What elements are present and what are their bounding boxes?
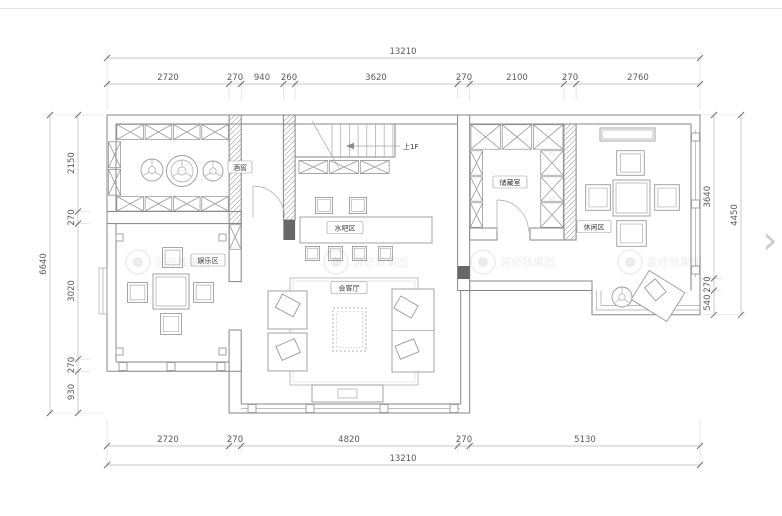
sofa: [392, 289, 434, 372]
bar-stool: [349, 197, 366, 213]
chair: [586, 185, 611, 211]
dim-label: 270: [227, 73, 243, 83]
armchair: [268, 333, 307, 371]
chair: [194, 283, 214, 303]
dimensions-bottom: 2720 270 4820 270 5130 13210: [104, 420, 703, 468]
chair: [161, 314, 182, 335]
dim-label: 260: [281, 73, 297, 83]
room-label-storage: 储藏室: [500, 178, 521, 187]
dim-label: 3620: [365, 73, 387, 83]
door-storage: [497, 200, 529, 232]
tv-cabinet: [312, 385, 383, 402]
living-room: [268, 278, 434, 402]
dim-label: 3020: [67, 280, 77, 302]
console-table: [600, 128, 655, 141]
stairs-direction-label: 上1F: [403, 142, 418, 151]
svg-text:装修效果图: 装修效果图: [647, 255, 702, 269]
watermark-logo: 装修效果图: [471, 250, 555, 274]
dim-label: 930: [67, 384, 77, 400]
dim-label: 2100: [506, 73, 528, 83]
dim-label: 270: [67, 209, 77, 225]
dim-label: 4820: [338, 435, 360, 445]
wine-cellar-room: [108, 124, 228, 211]
dimensions-right: 3640 270 540 4450: [702, 112, 746, 318]
lounge-chair: [631, 270, 685, 321]
dim-label: 270: [703, 276, 713, 292]
floor-plan-canvas: 上1F: [0, 0, 782, 516]
floor-plan-viewer: 上1F: [0, 0, 782, 516]
bar-stool: [315, 197, 332, 213]
chair: [617, 151, 645, 176]
round-decor-icon: [141, 159, 163, 181]
dim-label: 13210: [389, 47, 416, 57]
dim-label: 3640: [703, 186, 713, 208]
svg-text:装修效果图: 装修效果图: [353, 255, 408, 269]
armchair: [268, 291, 307, 329]
round-side-table: [612, 287, 632, 307]
staircase: 上1F: [295, 121, 418, 174]
room-label-leisure: 休闲区: [584, 223, 605, 232]
dim-label: 13210: [389, 454, 416, 464]
room-label-living: 会客厅: [339, 284, 360, 293]
room-label-water-bar: 水吧区: [335, 224, 356, 233]
room-label-wine-cellar: 酒窖: [233, 163, 247, 172]
dim-label: 2720: [157, 73, 179, 83]
dim-label: 540: [703, 294, 713, 310]
dim-label: 270: [227, 435, 243, 445]
door-wine-cellar: [253, 186, 285, 218]
svg-text:装修效果图: 装修效果图: [500, 255, 555, 269]
dim-label: 2150: [67, 152, 77, 174]
terrace-corner: [612, 270, 685, 321]
dim-label: 6640: [39, 253, 49, 275]
bar-stool: [305, 246, 319, 260]
dim-label: 270: [67, 357, 77, 373]
water-bar-area: [300, 197, 432, 260]
watermark-logo: 装修效果图: [618, 250, 702, 274]
round-decor-icon: [203, 161, 223, 181]
stairs-up-arrow: 上1F: [346, 142, 418, 151]
dim-label: 940: [254, 73, 270, 83]
dim-label: 270: [456, 435, 472, 445]
dimensions-top: 13210 2720 270 940 260 3620 270 2100 270…: [104, 47, 703, 110]
dim-label: 270: [562, 73, 578, 83]
leisure-table: [613, 180, 650, 216]
dim-label: 5130: [574, 435, 596, 445]
chair: [655, 185, 680, 211]
svg-text:装修效果图: 装修效果图: [155, 255, 210, 269]
dim-label: 4450: [730, 204, 740, 226]
dim-label: 2720: [157, 435, 179, 445]
round-decor-icon: [167, 156, 198, 187]
dim-label: 2760: [627, 73, 649, 83]
chair: [128, 283, 148, 303]
dim-label: 270: [456, 73, 472, 83]
next-image-chevron[interactable]: ›: [759, 220, 781, 264]
chair: [617, 221, 646, 247]
dimensions-left: 6640 2150 270 3020 270 930: [39, 112, 104, 416]
coffee-table: [333, 308, 366, 351]
